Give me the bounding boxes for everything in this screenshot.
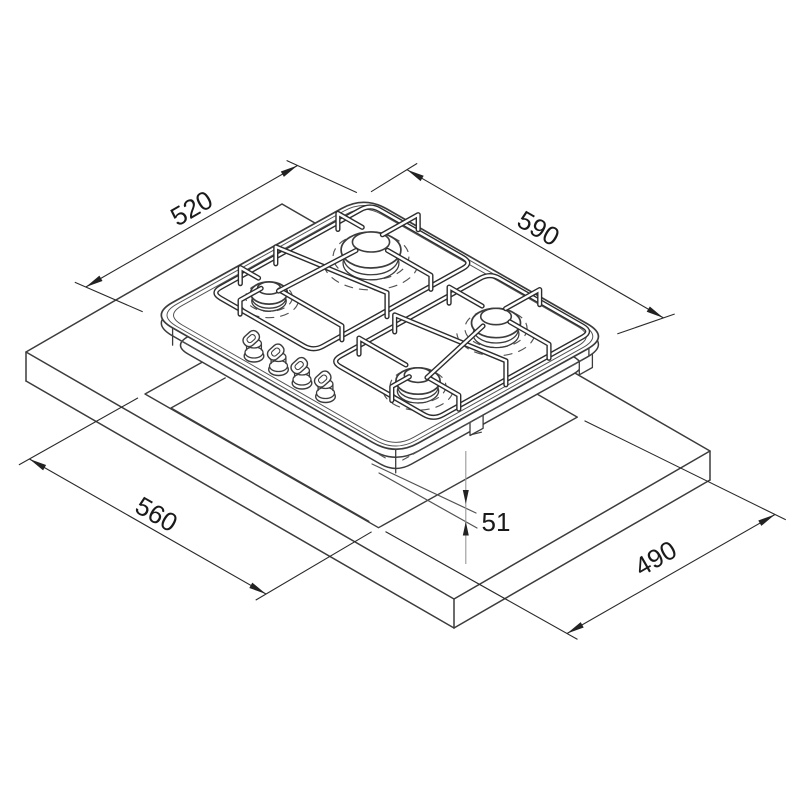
svg-text:51: 51 (482, 507, 511, 537)
